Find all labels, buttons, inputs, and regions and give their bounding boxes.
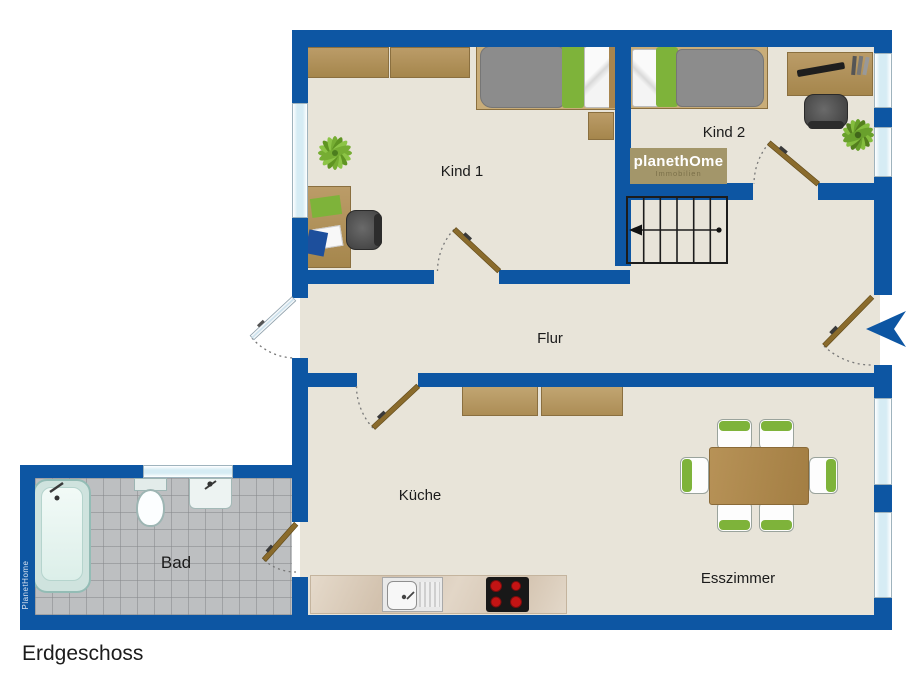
- entrance-arrow-icon: [866, 311, 906, 347]
- kitchen-faucet-icon: [402, 592, 414, 599]
- room-label-kind1: Kind 1: [441, 163, 484, 180]
- sink-faucet-icon: [205, 481, 216, 489]
- floor-plan-canvas: planethOme Immobilien: [0, 0, 907, 680]
- stairs-direction-arrow: [629, 225, 642, 236]
- window-leaf-pane: [251, 298, 294, 338]
- room-label-esszimmer: Esszimmer: [701, 570, 775, 587]
- window-swing-arc: [252, 338, 294, 358]
- door-swing-arc: [264, 560, 296, 572]
- plant-kind1-icon: [318, 136, 353, 171]
- wall-watermark-text: PlanetHome: [21, 545, 35, 625]
- room-label-bad: Bad: [161, 553, 191, 573]
- room-label-kueche: Küche: [399, 487, 442, 504]
- keyboard-icon: [797, 62, 845, 77]
- door-leaf: [262, 522, 298, 561]
- door-swing-arc: [754, 143, 769, 184]
- door-kind2: [754, 139, 822, 186]
- door-swing-arc: [356, 386, 373, 428]
- door-leaf: [823, 295, 874, 347]
- room-label-flur: Flur: [537, 330, 563, 347]
- open-window-flur: [248, 295, 296, 358]
- door-kueche: [356, 382, 419, 429]
- door-leaf: [453, 228, 501, 273]
- bathtub-faucet-icon: [50, 483, 63, 501]
- door-bad: [260, 521, 298, 572]
- books-icon: [851, 56, 870, 75]
- plant-kind2-icon: [841, 118, 874, 151]
- door-leaf: [767, 141, 819, 186]
- room-label-kind2: Kind 2: [703, 124, 746, 141]
- floor-title: Erdgeschoss: [22, 642, 143, 666]
- stove-burners-icon: [491, 581, 522, 608]
- door-swing-arc: [824, 346, 872, 365]
- door-swing-arc: [438, 229, 455, 271]
- door-entrance: [820, 293, 906, 365]
- door-leaf: [372, 384, 420, 429]
- stairs-direction-origin-dot: [716, 227, 721, 232]
- stairs: [627, 197, 727, 263]
- door-kind1: [438, 225, 503, 272]
